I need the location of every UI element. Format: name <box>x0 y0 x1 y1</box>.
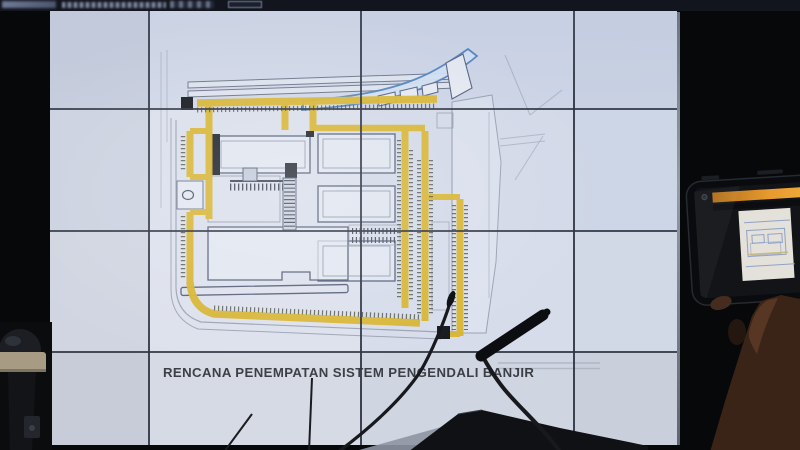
podium-desk <box>352 410 648 450</box>
phone-viewfinder <box>738 208 795 281</box>
smartphone-recording <box>685 167 800 306</box>
mic-rod <box>309 378 312 450</box>
dome-camera <box>0 322 52 450</box>
press-room-scene: RENCANA PENEMPATAN SISTEM PENGENDALI BAN… <box>0 0 800 450</box>
gooseneck-microphone-left <box>338 290 457 450</box>
phone-screen <box>694 181 800 298</box>
hand-holding-phone <box>709 293 800 450</box>
phone-front-camera <box>702 194 708 200</box>
mic-rod <box>224 414 252 450</box>
foreground <box>0 0 800 450</box>
